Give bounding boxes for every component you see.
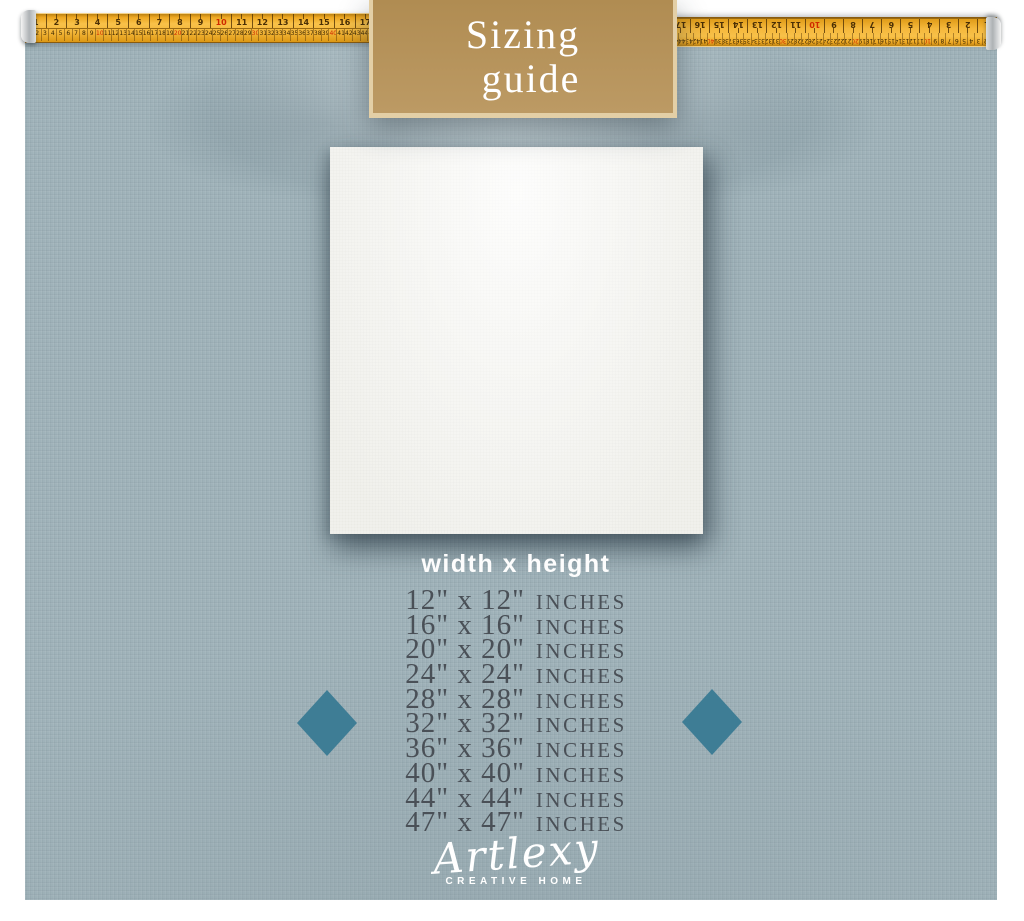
tape-cm-mark: 40 [328,29,336,41]
size-row: 28" x 28" INCHES [266,683,766,708]
tape-cm-mark: 39 [321,29,329,41]
tape-inch-mark: 9 [825,19,844,33]
tape-cm-mark: 23 [196,29,204,41]
tape-cm-mark: 27 [802,33,809,45]
tape-cm-mark: 41 [336,29,344,41]
tape-cm-mark: 21 [845,33,852,45]
tape-inch-mark: 6 [128,14,149,28]
tape-inch-mark: 14 [729,19,748,33]
tape-cm-mark: 30 [780,33,787,45]
tape-cm-mark: 19 [860,33,867,45]
tape-cm-mark: 31 [258,29,266,41]
tape-cm-mark: 32 [266,29,274,41]
tape-inch-mark: 15 [710,19,729,33]
tape-inch-mark: 8 [844,19,863,33]
tape-inch-mark: 11 [231,14,252,28]
tape-cm-mark: 24 [824,33,831,45]
size-unit: INCHES [536,763,627,788]
tape-inch-mark: 6 [882,19,901,33]
tape-cm-mark: 33 [274,29,282,41]
tape-cm-mark: 22 [188,29,196,41]
tape-body: 1234567891011121314151617 12345678910111… [672,17,997,47]
tape-cm-mark: 21 [181,29,189,41]
tape-cm-mark: 20 [173,29,181,41]
tape-cm-mark: 25 [212,29,220,41]
tape-cm-mark: 5 [56,29,64,41]
tape-cm-mark: 15 [134,29,142,41]
tape-cm-mark: 9 [932,33,939,45]
tape-inch-mark: 3 [940,19,959,33]
size-row: 12" x 12" INCHES [266,584,766,609]
tape-cm-row: 1234567891011121314151617181920212223242… [25,29,375,41]
tape-cm-mark: 36 [737,33,744,45]
tape-cm-mark: 26 [220,29,228,41]
size-row: 40" x 40" INCHES [266,757,766,782]
sizing-guide-page: 1234567891011121314151617 12345678910111… [0,0,1024,921]
tape-cm-mark: 22 [838,33,845,45]
tape-inch-mark: 5 [901,19,920,33]
tape-cm-mark: 6 [64,29,72,41]
measuring-tape-left: 1234567891011121314151617 12345678910111… [25,13,375,41]
tape-cm-mark: 4 [48,29,56,41]
size-row: 44" x 44" INCHES [266,782,766,807]
tape-cm-mark: 14 [896,33,903,45]
tape-end-clip-icon [21,10,36,43]
tape-cm-mark: 28 [795,33,802,45]
tape-inch-mark: 2 [959,19,978,33]
tape-cm-mark: 37 [305,29,313,41]
tape-cm-mark: 7 [72,29,80,41]
tape-inch-mark: 13 [272,14,293,28]
tape-cm-mark: 42 [344,29,352,41]
tape-inch-mark: 11 [787,19,806,33]
size-unit: INCHES [536,689,627,714]
tape-inch-mark: 8 [169,14,190,28]
tape-cm-mark: 18 [867,33,874,45]
tape-inch-mark: 15 [313,14,334,28]
tape-cm-mark: 16 [882,33,889,45]
tape-cm-mark: 8 [939,33,946,45]
tape-cm-mark: 17 [150,29,158,41]
tape-inch-mark: 16 [691,19,710,33]
tape-cm-mark: 6 [954,33,961,45]
tape-inch-mark: 13 [748,19,767,33]
tape-cm-mark: 18 [157,29,165,41]
tape-cm-mark: 8 [79,29,87,41]
tape-cm-mark: 15 [889,33,896,45]
tape-cm-mark: 4 [968,33,975,45]
tape-cm-mark: 23 [831,33,838,45]
tape-cm-mark: 37 [730,33,737,45]
tape-inch-mark: 14 [293,14,314,28]
tape-inch-mark: 7 [863,19,882,33]
tape-cm-mark: 7 [946,33,953,45]
tape-cm-mark: 40 [708,33,715,45]
tape-cm-mark: 11 [918,33,925,45]
tape-cm-mark: 42 [694,33,701,45]
tape-cm-mark: 11 [103,29,111,41]
tape-body: 1234567891011121314151617 12345678910111… [25,13,375,43]
tape-cm-mark: 38 [723,33,730,45]
size-unit: INCHES [536,615,627,640]
tape-cm-mark: 10 [925,33,932,45]
tape-cm-mark: 12 [111,29,119,41]
tape-inch-mark: 10 [210,14,231,28]
tape-inch-row: 1234567891011121314151617 [25,14,375,29]
tape-cm-mark: 24 [204,29,212,41]
tape-cm-mark: 9 [87,29,95,41]
tape-cm-mark: 31 [773,33,780,45]
tape-cm-mark: 34 [752,33,759,45]
tape-cm-mark: 43 [687,33,694,45]
tape-cm-mark: 39 [715,33,722,45]
tape-inch-mark: 9 [190,14,211,28]
tape-inch-row: 1234567891011121314151617 [672,18,997,33]
tape-inch-mark: 16 [334,14,355,28]
brand-logo: Artlexy [431,827,601,881]
tape-cm-mark: 16 [142,29,150,41]
tape-cm-mark: 17 [874,33,881,45]
tape-inch-mark: 10 [806,19,825,33]
size-unit: INCHES [536,788,627,813]
tape-cm-mark: 30 [251,29,259,41]
tape-cm-mark: 27 [227,29,235,41]
size-unit: INCHES [536,713,627,738]
size-table-heading: width x height [266,550,766,579]
size-row: 16" x 16" INCHES [266,609,766,634]
measuring-tape-right: 1234567891011121314151617 12345678910111… [672,19,997,47]
tape-cm-mark: 5 [961,33,968,45]
tape-cm-mark: 44 [679,33,686,45]
tape-cm-row: 1234567891011121314151617181920212223242… [672,33,997,45]
tape-cm-mark: 33 [759,33,766,45]
tape-cm-mark: 3 [41,29,49,41]
tape-cm-mark: 20 [853,33,860,45]
tape-inch-mark: 12 [252,14,273,28]
tape-cm-mark: 32 [766,33,773,45]
tape-cm-mark: 19 [165,29,173,41]
size-row: 47" x 47" INCHES [266,806,766,831]
tape-cm-mark: 26 [809,33,816,45]
tape-inch-mark: 4 [921,19,940,33]
tape-inch-mark: 2 [46,14,67,28]
tape-end-clip-icon [986,17,1001,50]
tape-cm-mark: 3 [975,33,982,45]
tape-inch-mark: 7 [149,14,170,28]
badge-title-line1: Sizing [466,13,580,57]
brand-footer: Artlexy CREATIVE HOME [266,833,766,887]
tape-cm-mark: 12 [910,33,917,45]
tape-inch-mark: 4 [87,14,108,28]
tape-cm-mark: 13 [903,33,910,45]
badge-title-line2: guide [466,57,581,101]
tape-cm-mark: 25 [817,33,824,45]
size-row: 24" x 24" INCHES [266,658,766,683]
size-unit: INCHES [536,590,627,615]
tape-cm-mark: 28 [235,29,243,41]
sizing-guide-badge: Sizing guide [369,0,677,118]
size-row: 20" x 20" INCHES [266,633,766,658]
tape-cm-mark: 36 [297,29,305,41]
size-unit: INCHES [536,664,627,689]
tape-cm-mark: 34 [282,29,290,41]
tape-cm-mark: 10 [95,29,103,41]
size-unit: INCHES [536,639,627,664]
tape-cm-mark: 35 [744,33,751,45]
size-unit: INCHES [536,738,627,763]
tape-cm-mark: 29 [788,33,795,45]
tape-cm-mark: 38 [313,29,321,41]
tape-inch-mark: 5 [107,14,128,28]
tape-inch-mark: 3 [66,14,87,28]
tape-cm-mark: 14 [126,29,134,41]
tape-cm-mark: 29 [243,29,251,41]
tape-cm-mark: 41 [701,33,708,45]
tape-cm-mark: 44 [360,29,368,41]
tape-cm-mark: 13 [118,29,126,41]
tape-cm-mark: 35 [290,29,298,41]
tape-cm-mark: 43 [352,29,360,41]
tape-inch-mark: 12 [768,19,787,33]
blank-canvas-preview [330,147,703,534]
